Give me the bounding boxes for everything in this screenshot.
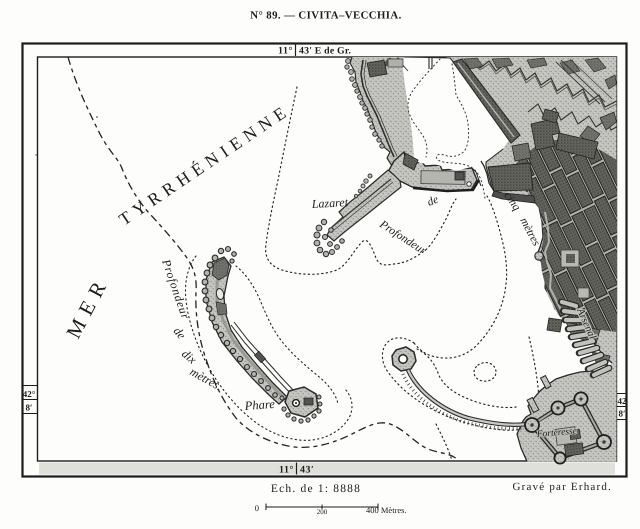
svg-text:400 Mètres.: 400 Mètres. (366, 505, 407, 515)
svg-text:Lazaret: Lazaret (310, 195, 349, 211)
svg-text:43′ E de Gr.: 43′ E de Gr. (299, 46, 352, 57)
svg-text:Ech. de 1: 8888: Ech. de 1: 8888 (271, 483, 361, 495)
svg-text:42: 42 (618, 396, 628, 406)
svg-text:8′: 8′ (25, 403, 32, 413)
svg-text:11°: 11° (278, 46, 293, 57)
svg-text:0: 0 (255, 503, 259, 513)
svg-text:Phare: Phare (243, 397, 275, 413)
svg-text:200: 200 (317, 508, 328, 516)
svg-text:8′: 8′ (618, 409, 625, 419)
svg-text:Gravé par Erhard.: Gravé par Erhard. (513, 481, 613, 493)
svg-text:42°: 42° (23, 389, 36, 399)
svg-text:N° 89. — CIVITA–VECCHIA.: N° 89. — CIVITA–VECCHIA. (250, 10, 401, 22)
svg-text:43′: 43′ (300, 465, 314, 476)
svg-text:11°: 11° (279, 465, 294, 476)
